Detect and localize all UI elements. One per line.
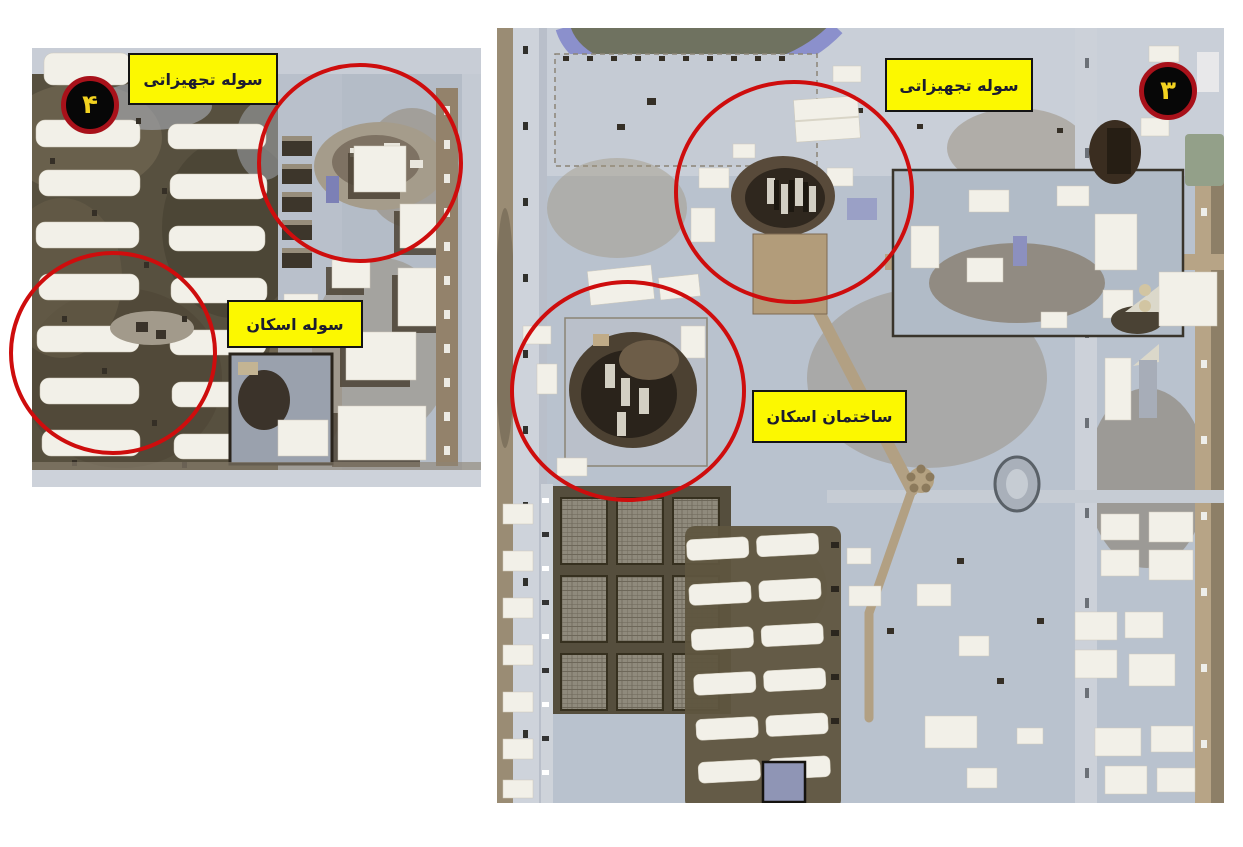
label-accommodation-building-right-text: ساختمان اسکان: [767, 407, 893, 426]
marker-number-3: ۳: [1160, 78, 1176, 104]
label-accommodation-shed-left-text: سوله اسکان: [246, 315, 343, 334]
label-equipment-shed-left: سوله تجهیزاتی: [128, 53, 278, 105]
label-accommodation-building-right: ساختمان اسکان: [752, 390, 907, 443]
page: ۴ ۳ سوله تجهیزاتی سوله اسکان سوله تجهیزا…: [0, 0, 1243, 847]
marker-number-4: ۴: [82, 92, 98, 118]
marker-badge-4: ۴: [61, 76, 119, 134]
label-accommodation-shed-left: سوله اسکان: [227, 300, 363, 348]
marker-badge-3: ۳: [1139, 62, 1197, 120]
label-equipment-shed-right-text: سوله تجهیزاتی: [899, 76, 1018, 95]
label-equipment-shed-right: سوله تجهیزاتی: [885, 58, 1033, 112]
label-equipment-shed-left-text: سوله تجهیزاتی: [143, 70, 262, 89]
